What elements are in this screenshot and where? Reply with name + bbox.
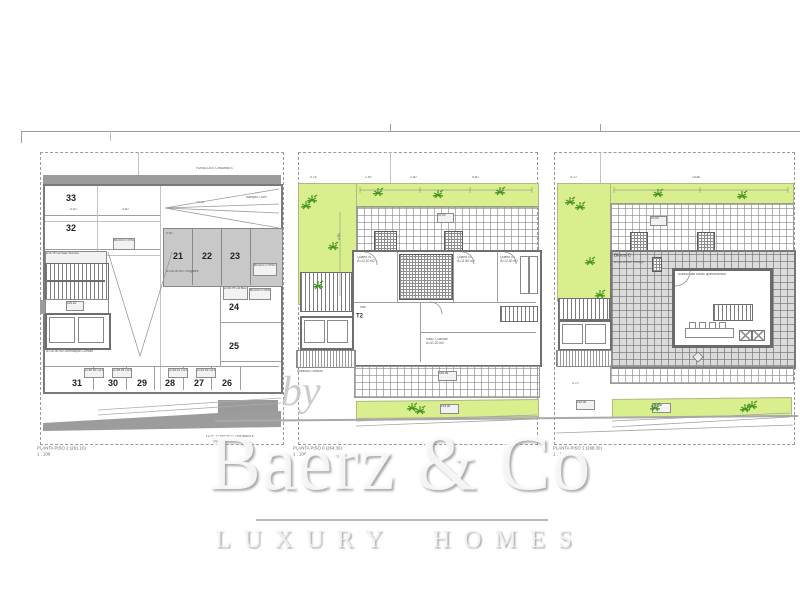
terrace-grid — [610, 365, 794, 384]
wardrobe — [520, 256, 529, 294]
dim-box: 160.00 — [652, 403, 671, 413]
dim-label: 15.80 — [692, 176, 700, 180]
arrumos-note: A=16.90 m2 Arrumação Comum — [46, 350, 93, 354]
elevator-car — [562, 324, 583, 344]
watermark-by: by — [281, 368, 321, 416]
elevator-car — [304, 320, 325, 343]
sheet-tick-2 — [390, 124, 391, 131]
unit-box: A=24.30 m2 Box 3 — [196, 368, 216, 378]
stairs-rail — [47, 280, 105, 282]
core-stairs — [558, 298, 610, 320]
ramp-hatch — [556, 350, 612, 367]
roof-room-note: Acesso das zonas apartamentos — [678, 273, 726, 277]
room-label: Hall — [360, 306, 366, 310]
corridor-wall — [354, 302, 536, 303]
ramp-hatch — [296, 350, 356, 368]
garage-line — [45, 215, 160, 216]
parking-space-31-label: 31 — [72, 378, 82, 388]
wall-stub — [40, 300, 45, 314]
partition-wall — [397, 252, 398, 302]
garage-line — [97, 186, 98, 255]
chimney-hatch — [652, 257, 662, 272]
parking-space-21-label: 21 — [173, 251, 183, 261]
stool — [709, 322, 716, 329]
garage-line — [221, 228, 222, 285]
stool — [699, 322, 706, 329]
unit-box: BLOCO C PISO 4 — [249, 288, 271, 300]
table — [752, 330, 765, 341]
garden-strip — [356, 183, 539, 208]
unit-box: A=26.10 m2 Box 4 — [168, 368, 188, 378]
sheet-top-border — [21, 131, 800, 132]
dim-box: 10.00 — [437, 213, 454, 223]
garage-line — [160, 186, 161, 390]
dim-label: 1.90 — [365, 176, 371, 180]
garden-area — [557, 183, 612, 302]
unit-box: A=28.05 m2 Box 5 — [112, 368, 132, 378]
elevator-car — [585, 324, 606, 344]
dim-box: 160.00 — [576, 400, 595, 410]
parking-space-29-label: 29 — [137, 378, 147, 388]
floor-boundary-divider — [390, 152, 391, 183]
dim-label: 4.75 — [310, 176, 316, 180]
garage-top-note: FURACOES CHAMINES — [196, 167, 233, 171]
watermark-divider — [256, 519, 548, 521]
parking-space-32-label: 32 — [66, 223, 76, 233]
dim-label: 4.90 — [166, 232, 172, 236]
sheet-tick-1 — [110, 131, 111, 141]
watermark-tagline: LUXURY HOMES — [160, 527, 640, 552]
garage-line — [220, 285, 221, 366]
garden-strip — [612, 397, 792, 418]
room-label: Sala / CozinhaA=41.20 m2 — [426, 338, 447, 346]
partition-wall — [497, 252, 498, 302]
watermark-brand: Baerz & Co — [190, 424, 610, 502]
garage-boundary-divider — [138, 152, 139, 176]
garage-line — [45, 249, 160, 250]
level-box: 100.10 — [66, 301, 84, 311]
skylight-hatch — [697, 232, 715, 252]
room-label: Quarto 03A=12.40 m2 — [500, 256, 518, 264]
parking-space-25-label: 25 — [229, 341, 239, 351]
parking-space-22-label: 22 — [202, 251, 212, 261]
room-label: Quarto 01A=12.10 m2 — [357, 256, 375, 264]
stool — [719, 322, 726, 329]
garage-ramp-note: Rampa i=15% — [246, 196, 267, 200]
room-label: Quarto 02A=11.80 m2 — [457, 256, 475, 264]
garage-line — [45, 366, 279, 367]
garage-top-wall-band — [43, 175, 281, 184]
garage-line — [45, 221, 160, 222]
roof-boundary-divider — [600, 152, 601, 183]
sheet-left-border — [21, 131, 22, 143]
garage-line — [240, 366, 241, 390]
roof-stairs — [713, 304, 753, 321]
stool — [689, 322, 696, 329]
unit-box: BLOCO C PISO 2 — [113, 238, 135, 250]
dim-label: 2.50 — [410, 176, 416, 180]
dim-label: 3.60 — [122, 208, 128, 212]
dim-box: 160.00 — [440, 404, 459, 414]
interior-stairs — [500, 306, 538, 322]
garden-strip — [610, 183, 794, 205]
garage-line — [220, 322, 281, 323]
bloco-label: Bloco C — [614, 253, 631, 258]
elevator-car — [49, 317, 75, 343]
parking-space-33-label: 33 — [66, 193, 76, 203]
dim-label: 4.70 — [570, 176, 576, 180]
dim-label: 4.50 — [338, 234, 341, 240]
parking-space-27-label: 27 — [194, 378, 204, 388]
unit-box: A=30.50 m2 Box 6 — [84, 368, 104, 378]
parking-space-28-label: 28 — [165, 378, 175, 388]
elevator-car — [327, 320, 348, 343]
unit-type-label: T2 — [356, 312, 363, 319]
garage-line — [154, 366, 155, 390]
partition-wall — [453, 252, 454, 302]
garage-plan-title: PLANTA PISO 2 (261.10) 1 : 100 — [37, 446, 86, 457]
dim-box: 10.00 — [650, 216, 667, 226]
garage-line — [220, 361, 281, 362]
room-label: I.S. — [404, 258, 409, 262]
core-stairs — [300, 272, 352, 312]
plan-sheet: FURACOES CHAMINES 33 32 5.40 3.60 30.05 … — [0, 0, 800, 600]
elevator-car — [78, 317, 104, 343]
unit-box: BLOCO C PISO 3 — [253, 263, 277, 276]
dim-label: 4.70 — [572, 382, 578, 386]
dim-box: 160.00 — [438, 371, 457, 381]
dim-label: 5.60 — [472, 176, 478, 180]
garage-line — [250, 228, 251, 285]
dim-label: 5.40 — [70, 208, 76, 212]
parking-space-24-label: 24 — [229, 302, 239, 312]
garage-line — [192, 228, 193, 285]
partition-wall — [420, 332, 536, 333]
unit-box: A=32.75 m2 Box 1 — [223, 286, 248, 300]
bloco-sub-label: A=28.20 m2 Terraço — [614, 261, 644, 265]
wardrobe — [529, 256, 538, 294]
counter — [685, 328, 734, 338]
table — [739, 330, 752, 341]
parking-space-23-label: 23 — [230, 251, 240, 261]
skylight-hatch — [630, 232, 648, 252]
dim-label: 30.05 — [196, 201, 204, 205]
garage-block-note: A=28.00 m2 4 lugares — [166, 270, 198, 274]
sheet-tick-3 — [600, 124, 601, 131]
parking-space-30-label: 30 — [108, 378, 118, 388]
parking-space-26-label: 26 — [222, 378, 232, 388]
